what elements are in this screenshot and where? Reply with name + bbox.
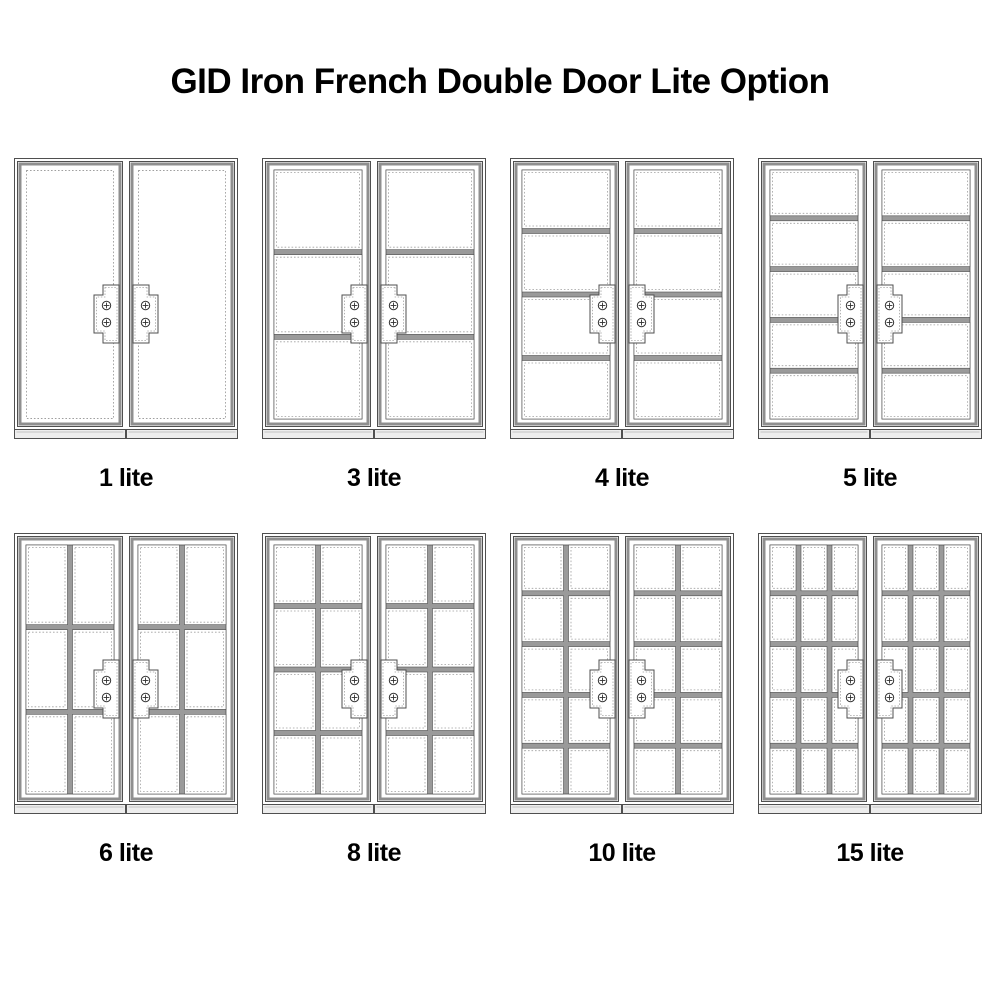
door-sill <box>623 805 734 814</box>
glass-pane <box>321 545 363 604</box>
door-sill <box>759 805 870 814</box>
glass-pane <box>832 545 858 591</box>
screw-icon <box>885 676 893 684</box>
glass-pane <box>913 545 939 591</box>
glass-pane <box>882 748 908 794</box>
glass-pane <box>801 697 827 743</box>
glass-pane <box>386 170 474 250</box>
glass-pane <box>801 596 827 642</box>
door-options-row-2: 6 lite 8 lite 10 lite 15 lite <box>14 533 982 867</box>
screw-icon <box>389 318 397 326</box>
glass-pane <box>569 596 611 642</box>
door-leaf-right <box>378 537 483 802</box>
glass-pane <box>634 545 676 591</box>
door-leaf-left <box>514 162 619 427</box>
double-door-graphic-6-lite <box>14 533 238 815</box>
door-sill <box>263 805 374 814</box>
door-options-row-1: 1 lite 3 lite 4 lite 5 lite <box>14 158 982 492</box>
door-sill <box>511 805 622 814</box>
door-sill <box>871 805 982 814</box>
door-option-label: 5 lite <box>758 464 982 492</box>
glass-pane <box>522 545 564 591</box>
door-sill <box>15 805 126 814</box>
screw-icon <box>598 676 606 684</box>
glass-pane <box>882 221 970 267</box>
double-door-graphic-1-lite <box>14 158 238 440</box>
glass-pane <box>832 748 858 794</box>
door-sill <box>127 805 238 814</box>
glass-pane <box>433 672 475 731</box>
glass-pane <box>386 736 428 795</box>
glass-pane <box>274 545 316 604</box>
glass-pane <box>138 545 180 625</box>
door-option-label: 10 lite <box>510 839 734 867</box>
door-sill <box>375 430 486 439</box>
glass-pane <box>944 748 970 794</box>
glass-pane <box>26 545 68 625</box>
glass-pane <box>944 647 970 693</box>
door-option-label: 6 lite <box>14 839 238 867</box>
door-leaf-left <box>762 537 867 802</box>
glass-pane <box>882 373 970 419</box>
door-leaf-left <box>514 537 619 802</box>
glass-pane <box>913 748 939 794</box>
screw-icon <box>846 318 854 326</box>
glass-pane <box>274 736 316 795</box>
screw-icon <box>350 301 358 309</box>
glass-pane <box>882 170 970 216</box>
glass-pane <box>522 748 564 794</box>
door-leaf-left <box>266 537 371 802</box>
door-leaf-left <box>762 162 867 427</box>
glass-pane <box>770 647 796 693</box>
glass-pane <box>634 748 676 794</box>
glass-pane <box>770 596 796 642</box>
screw-icon <box>141 676 149 684</box>
screw-icon <box>637 676 645 684</box>
glass-pane <box>274 672 316 731</box>
glass-pane <box>522 596 564 642</box>
double-door-graphic-4-lite <box>510 158 734 440</box>
glass-pane <box>274 170 362 250</box>
screw-icon <box>885 318 893 326</box>
door-option-label: 15 lite <box>758 839 982 867</box>
screw-icon <box>389 301 397 309</box>
door-leaf-left <box>18 537 123 802</box>
glass-pane <box>681 596 723 642</box>
double-door-graphic-10-lite <box>510 533 734 815</box>
glass-pane <box>634 361 722 420</box>
glass-pane <box>522 647 564 693</box>
door-option-10-lite: 10 lite <box>510 533 734 867</box>
door-option-6-lite: 6 lite <box>14 533 238 867</box>
door-option-15-lite: 15 lite <box>758 533 982 867</box>
glass-pane <box>321 736 363 795</box>
glass-pane <box>569 748 611 794</box>
screw-icon <box>885 301 893 309</box>
screw-icon <box>637 318 645 326</box>
glass-pane <box>882 596 908 642</box>
page-title: GID Iron French Double Door Lite Option <box>0 62 1000 102</box>
door-sill <box>623 430 734 439</box>
screw-icon <box>598 318 606 326</box>
screw-icon <box>846 676 854 684</box>
door-option-8-lite: 8 lite <box>262 533 486 867</box>
glass-pane <box>770 545 796 591</box>
glass-pane <box>73 714 115 794</box>
door-sill <box>759 430 870 439</box>
door-option-3-lite: 3 lite <box>262 158 486 492</box>
glass-pane <box>770 170 858 216</box>
door-leaf-right <box>130 162 235 427</box>
door-option-5-lite: 5 lite <box>758 158 982 492</box>
glass-pane <box>522 361 610 420</box>
door-leaf-right <box>626 537 731 802</box>
door-leaf-right <box>130 537 235 802</box>
glass-pane <box>681 545 723 591</box>
door-option-4-lite: 4 lite <box>510 158 734 492</box>
double-door-graphic-15-lite <box>758 533 982 815</box>
glass-pane <box>944 596 970 642</box>
glass-pane <box>681 697 723 743</box>
screw-icon <box>389 676 397 684</box>
double-door-graphic-5-lite <box>758 158 982 440</box>
door-sill <box>871 430 982 439</box>
double-door-graphic-3-lite <box>262 158 486 440</box>
screw-icon <box>350 693 358 701</box>
door-leaf-left <box>266 162 371 427</box>
glass-pane <box>801 647 827 693</box>
screw-icon <box>141 318 149 326</box>
glass-pane <box>321 609 363 668</box>
glass-pane <box>944 697 970 743</box>
glass-pane <box>634 234 722 293</box>
door-option-label: 4 lite <box>510 464 734 492</box>
glass-pane <box>185 545 227 625</box>
door-sill <box>511 430 622 439</box>
screw-icon <box>350 676 358 684</box>
door-leaf-right <box>378 162 483 427</box>
glass-pane <box>138 714 180 794</box>
glass-pane <box>913 647 939 693</box>
glass-pane <box>26 714 68 794</box>
door-sill <box>263 430 374 439</box>
screw-icon <box>102 318 110 326</box>
door-leaf-right <box>874 162 979 427</box>
screw-icon <box>102 676 110 684</box>
screw-icon <box>637 301 645 309</box>
glass-pane <box>944 545 970 591</box>
glass-pane <box>681 748 723 794</box>
screw-icon <box>598 301 606 309</box>
door-option-1-lite: 1 lite <box>14 158 238 492</box>
glass-pane <box>386 339 474 419</box>
door-leaf-right <box>626 162 731 427</box>
glass-pane <box>185 714 227 794</box>
glass-pane <box>522 234 610 293</box>
screw-icon <box>350 318 358 326</box>
screw-icon <box>846 693 854 701</box>
screw-icon <box>141 693 149 701</box>
screw-icon <box>637 693 645 701</box>
glass-pane <box>26 630 68 710</box>
glass-pane <box>386 609 428 668</box>
product-diagram-board: GID Iron French Double Door Lite Option … <box>0 0 1000 1000</box>
screw-icon <box>885 693 893 701</box>
glass-pane <box>433 609 475 668</box>
glass-pane <box>634 170 722 229</box>
glass-pane <box>274 609 316 668</box>
glass-pane <box>770 373 858 419</box>
door-option-label: 8 lite <box>262 839 486 867</box>
glass-pane <box>433 545 475 604</box>
door-sill <box>375 805 486 814</box>
glass-pane <box>770 221 858 267</box>
glass-pane <box>433 736 475 795</box>
screw-icon <box>389 693 397 701</box>
glass-pane <box>522 697 564 743</box>
door-sill <box>15 430 126 439</box>
glass-pane <box>569 545 611 591</box>
door-option-label: 1 lite <box>14 464 238 492</box>
screw-icon <box>141 301 149 309</box>
glass-pane <box>882 545 908 591</box>
door-option-label: 3 lite <box>262 464 486 492</box>
glass-pane <box>185 630 227 710</box>
screw-icon <box>102 693 110 701</box>
glass-pane <box>386 545 428 604</box>
glass-pane <box>770 697 796 743</box>
glass-pane <box>801 545 827 591</box>
screw-icon <box>846 301 854 309</box>
screw-icon <box>598 693 606 701</box>
door-leaf-left <box>18 162 123 427</box>
glass-pane <box>770 748 796 794</box>
glass-pane <box>801 748 827 794</box>
glass-pane <box>73 545 115 625</box>
glass-pane <box>634 596 676 642</box>
glass-pane <box>913 596 939 642</box>
door-leaf-right <box>874 537 979 802</box>
door-sill <box>127 430 238 439</box>
glass-pane <box>832 596 858 642</box>
glass-pane <box>522 170 610 229</box>
glass-pane <box>681 647 723 693</box>
screw-icon <box>102 301 110 309</box>
glass-pane <box>913 697 939 743</box>
glass-pane <box>274 339 362 419</box>
double-door-graphic-8-lite <box>262 533 486 815</box>
